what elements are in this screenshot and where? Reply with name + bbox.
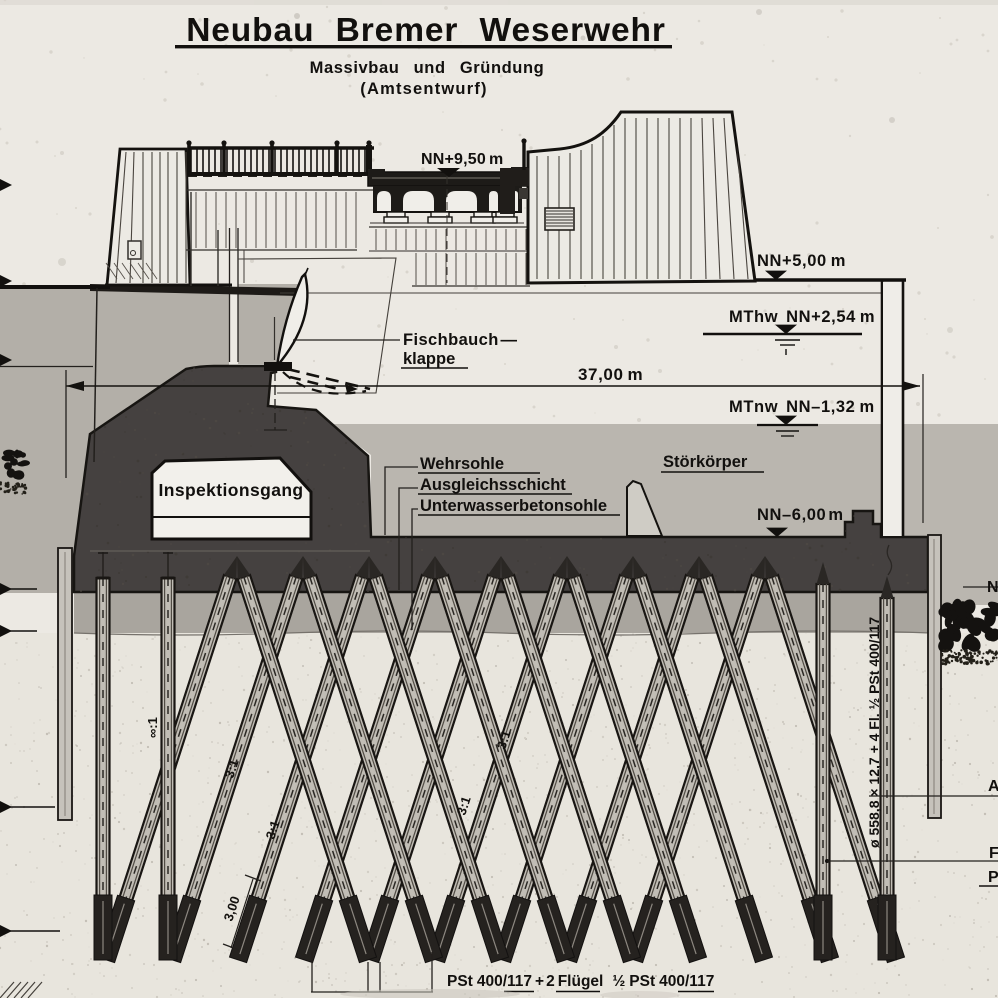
svg-text:Inspektionsgang: Inspektionsgang [158, 480, 303, 500]
svg-text:PSt400/117+2Flügel½PSt400/117: PSt400/117+2Flügel½PSt400/117 [447, 973, 714, 990]
svg-text:N: N [987, 579, 998, 596]
svg-text:37,00m: 37,00m [578, 365, 643, 384]
svg-text:Massivbau und Gründung: Massivbau und Gründung [310, 59, 545, 77]
svg-text:MThwNN+2,54m: MThwNN+2,54m [729, 308, 875, 326]
svg-text:ø 558,8 × 12,7 + 4 Fl. ½ PSt 4: ø 558,8 × 12,7 + 4 Fl. ½ PSt 400/117 [866, 617, 882, 848]
svg-text:Fischbauch —: Fischbauch — [403, 331, 517, 349]
svg-text:Ausgleichsschicht: Ausgleichsschicht [420, 476, 566, 494]
svg-text:MTnwNN–1,32m: MTnwNN–1,32m [729, 398, 875, 416]
svg-text:∞:1: ∞:1 [145, 717, 160, 738]
svg-text:Störkörper: Störkörper [663, 453, 748, 471]
svg-text:NN+9,50m: NN+9,50m [421, 151, 503, 168]
svg-text:Neubau Bremer Weserwehr: Neubau Bremer Weserwehr [186, 12, 666, 49]
svg-text:Wehrsohle: Wehrsohle [420, 455, 504, 473]
svg-text:A: A [988, 778, 998, 795]
svg-text:F: F [989, 845, 998, 862]
svg-text:klappe: klappe [403, 350, 455, 368]
svg-text:NN+5,00m: NN+5,00m [757, 252, 846, 270]
svg-text:(Amtsentwurf): (Amtsentwurf) [360, 80, 487, 98]
svg-text:Unterwasserbetonsohle: Unterwasserbetonsohle [420, 497, 607, 515]
svg-text:NN–6,00m: NN–6,00m [757, 506, 844, 524]
svg-text:P: P [988, 869, 998, 886]
